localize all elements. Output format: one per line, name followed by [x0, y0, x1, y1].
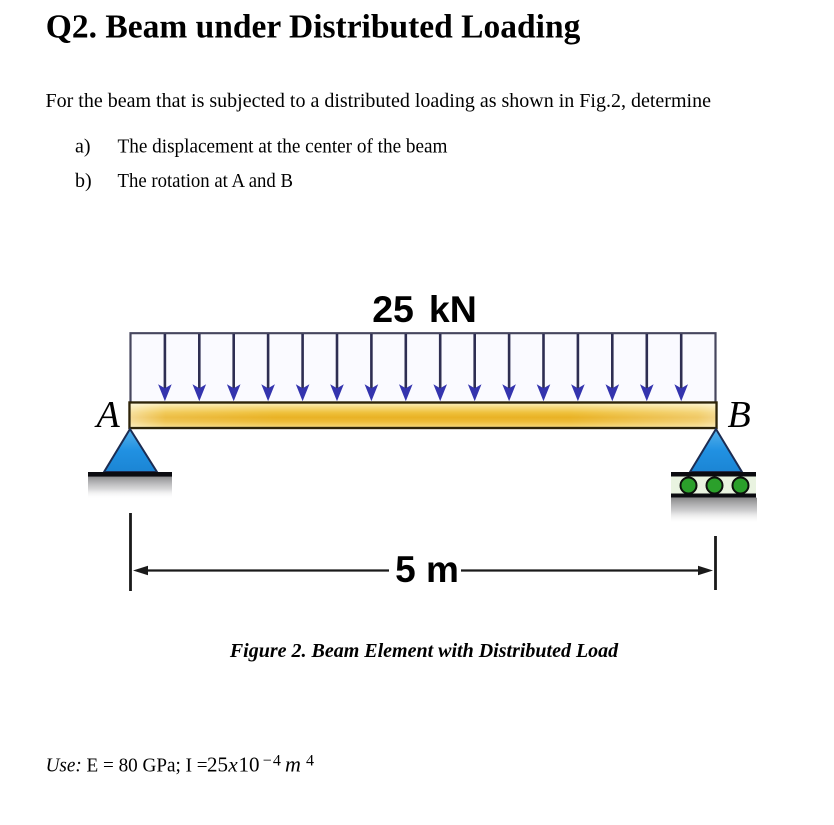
svg-text:b): b) — [75, 170, 92, 192]
svg-text:Use: E = 80 GPa; I =: Use: E = 80 GPa; I = — [46, 755, 208, 777]
svg-text:The displacement at the center: The displacement at the center of the be… — [118, 136, 448, 157]
svg-text:10: 10 — [239, 753, 260, 777]
svg-text:Figure 2. Beam Element with Di: Figure 2. Beam Element with Distributed … — [229, 640, 619, 662]
svg-text:−4: −4 — [263, 753, 282, 770]
svg-text:4: 4 — [306, 753, 314, 770]
svg-text:25 kN: 25 kN — [372, 288, 477, 330]
svg-text:B: B — [728, 394, 751, 436]
svg-text:For the beam that is subjected: For the beam that is subjected to a dist… — [46, 90, 712, 112]
svg-text:a): a) — [75, 135, 91, 157]
svg-text:x: x — [227, 753, 238, 777]
svg-text:A: A — [94, 394, 121, 436]
svg-text:Q2. Beam under Distributed Loa: Q2. Beam under Distributed Loading — [46, 9, 581, 46]
svg-text:m: m — [285, 752, 301, 777]
svg-text:25: 25 — [207, 753, 228, 777]
svg-text:5 m: 5 m — [395, 549, 459, 590]
svg-text:The rotation at A and B: The rotation at A and B — [118, 171, 294, 192]
